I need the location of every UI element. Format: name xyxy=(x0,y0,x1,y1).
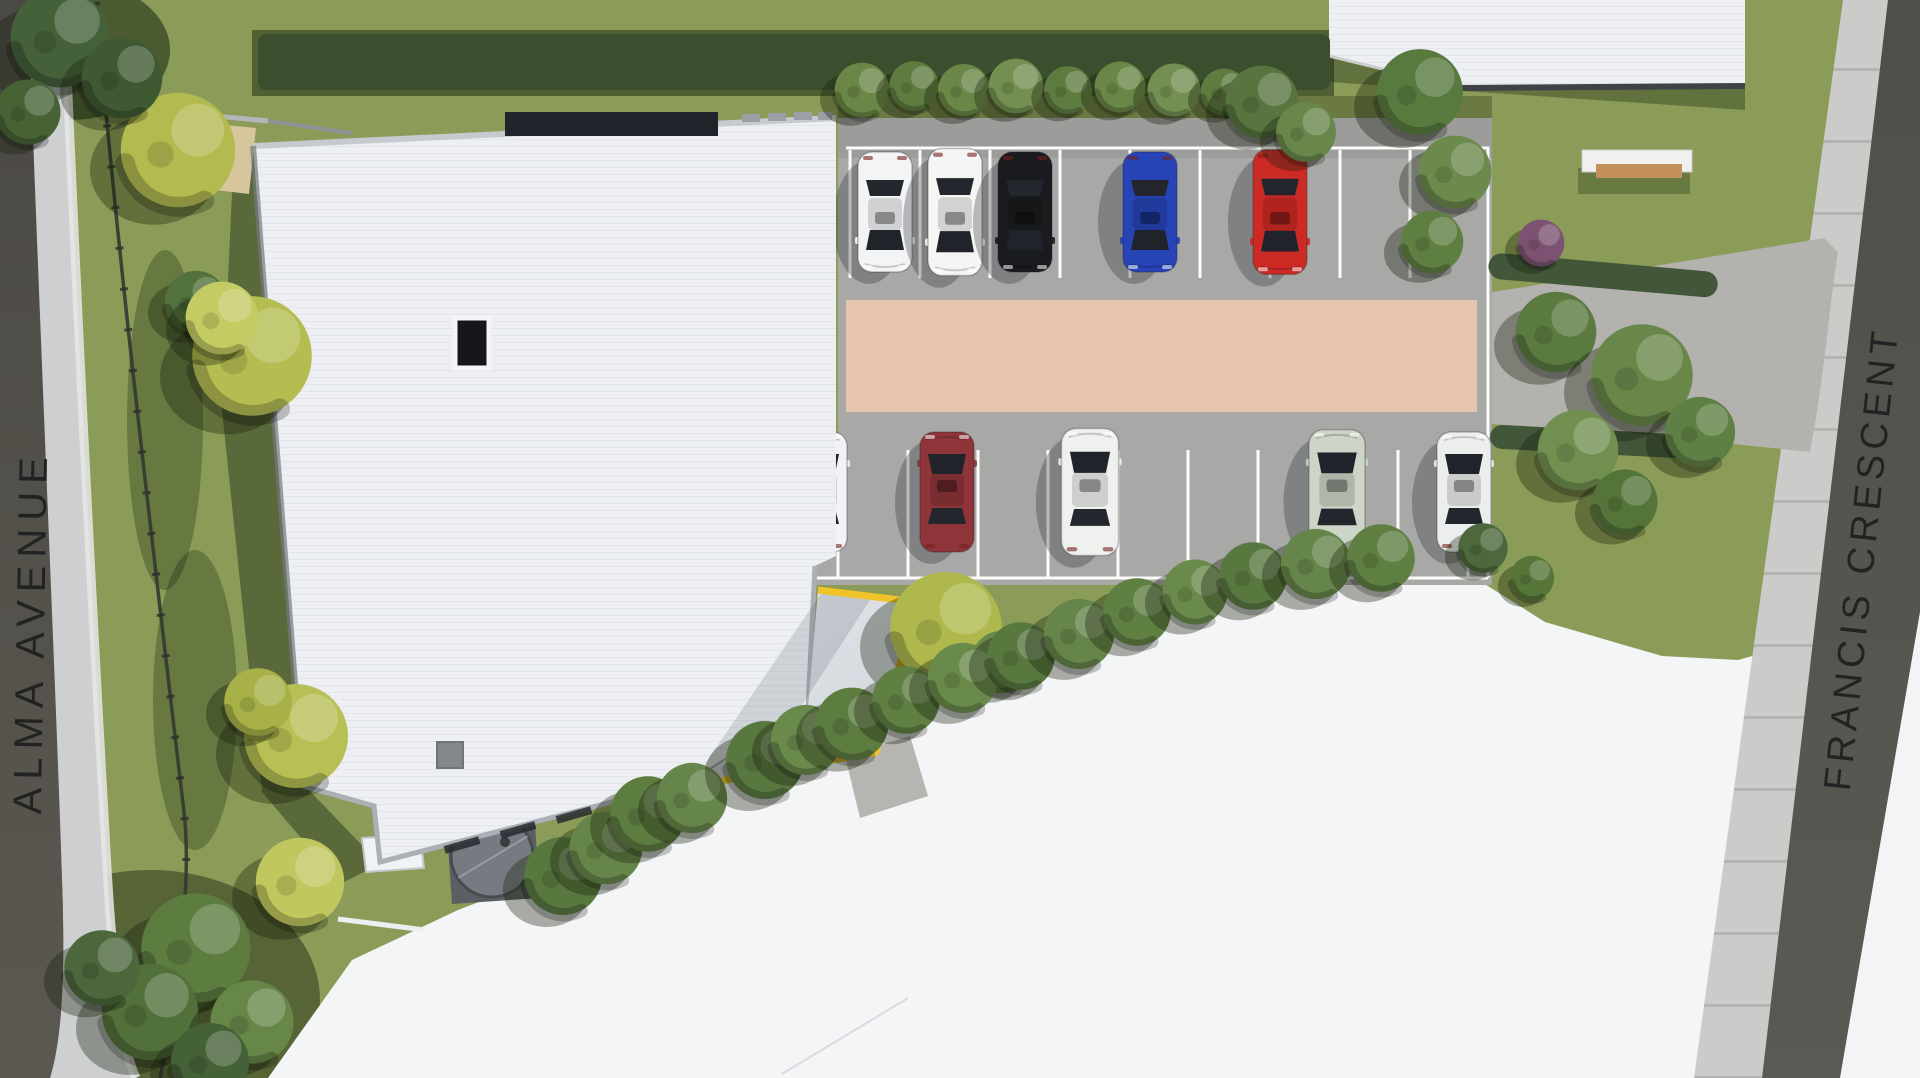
bench-timber-slat xyxy=(1596,164,1682,178)
roof-hatch xyxy=(455,318,489,368)
pedestrian-band xyxy=(846,300,1477,412)
site-plan-svg: ALMA AVENUE FRANCIS CRESCENT xyxy=(0,0,1920,1078)
roof-dark-panel xyxy=(505,112,718,136)
street-label-alma: ALMA AVENUE xyxy=(6,449,56,815)
neighbor-fascia xyxy=(1460,86,1745,88)
roof-vent xyxy=(437,742,463,768)
site-plan-render: ALMA AVENUE FRANCIS CRESCENT xyxy=(0,0,1920,1078)
